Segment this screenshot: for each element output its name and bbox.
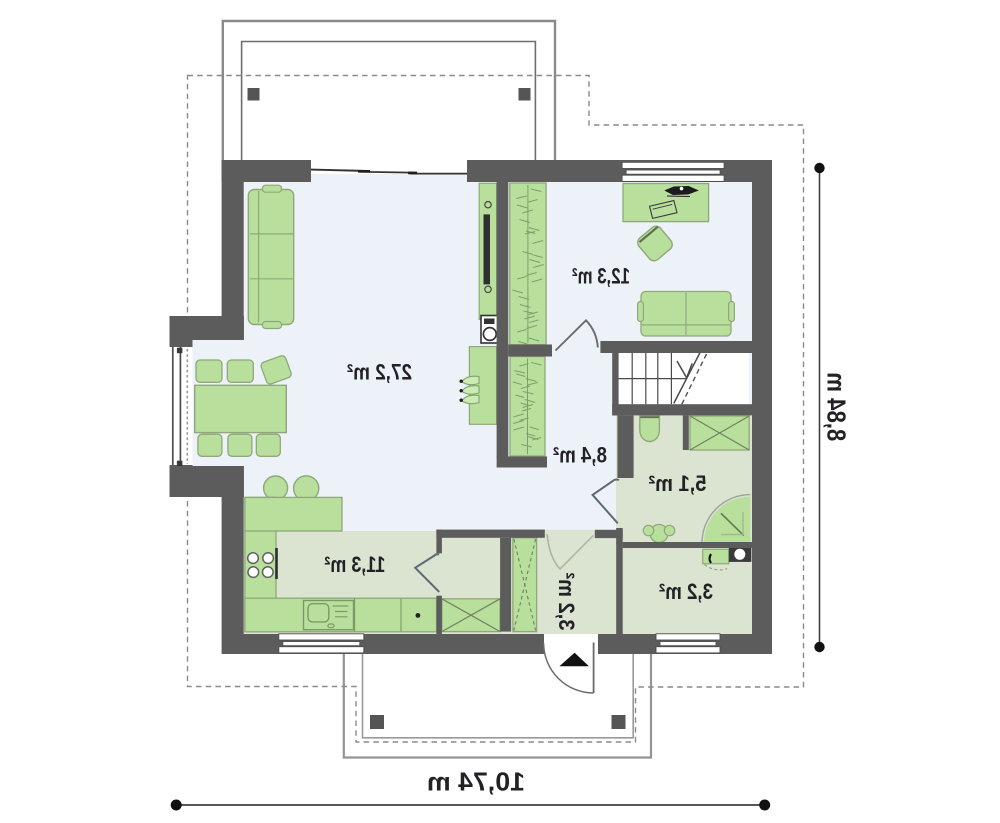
svg-text:27,2 m²: 27,2 m² (347, 360, 412, 385)
svg-text:3,2 m²: 3,2 m² (659, 579, 713, 604)
svg-text:11,3 m²: 11,3 m² (324, 552, 385, 577)
svg-text:12,3 m²: 12,3 m² (572, 264, 630, 289)
svg-text:5,1 m²: 5,1 m² (649, 471, 707, 496)
svg-text:8,84 m: 8,84 m (822, 372, 852, 441)
svg-text:8,4 m²: 8,4 m² (553, 443, 607, 468)
svg-text:3,2 m²: 3,2 m² (554, 573, 579, 631)
svg-text:10,74 m: 10,74 m (427, 767, 525, 797)
